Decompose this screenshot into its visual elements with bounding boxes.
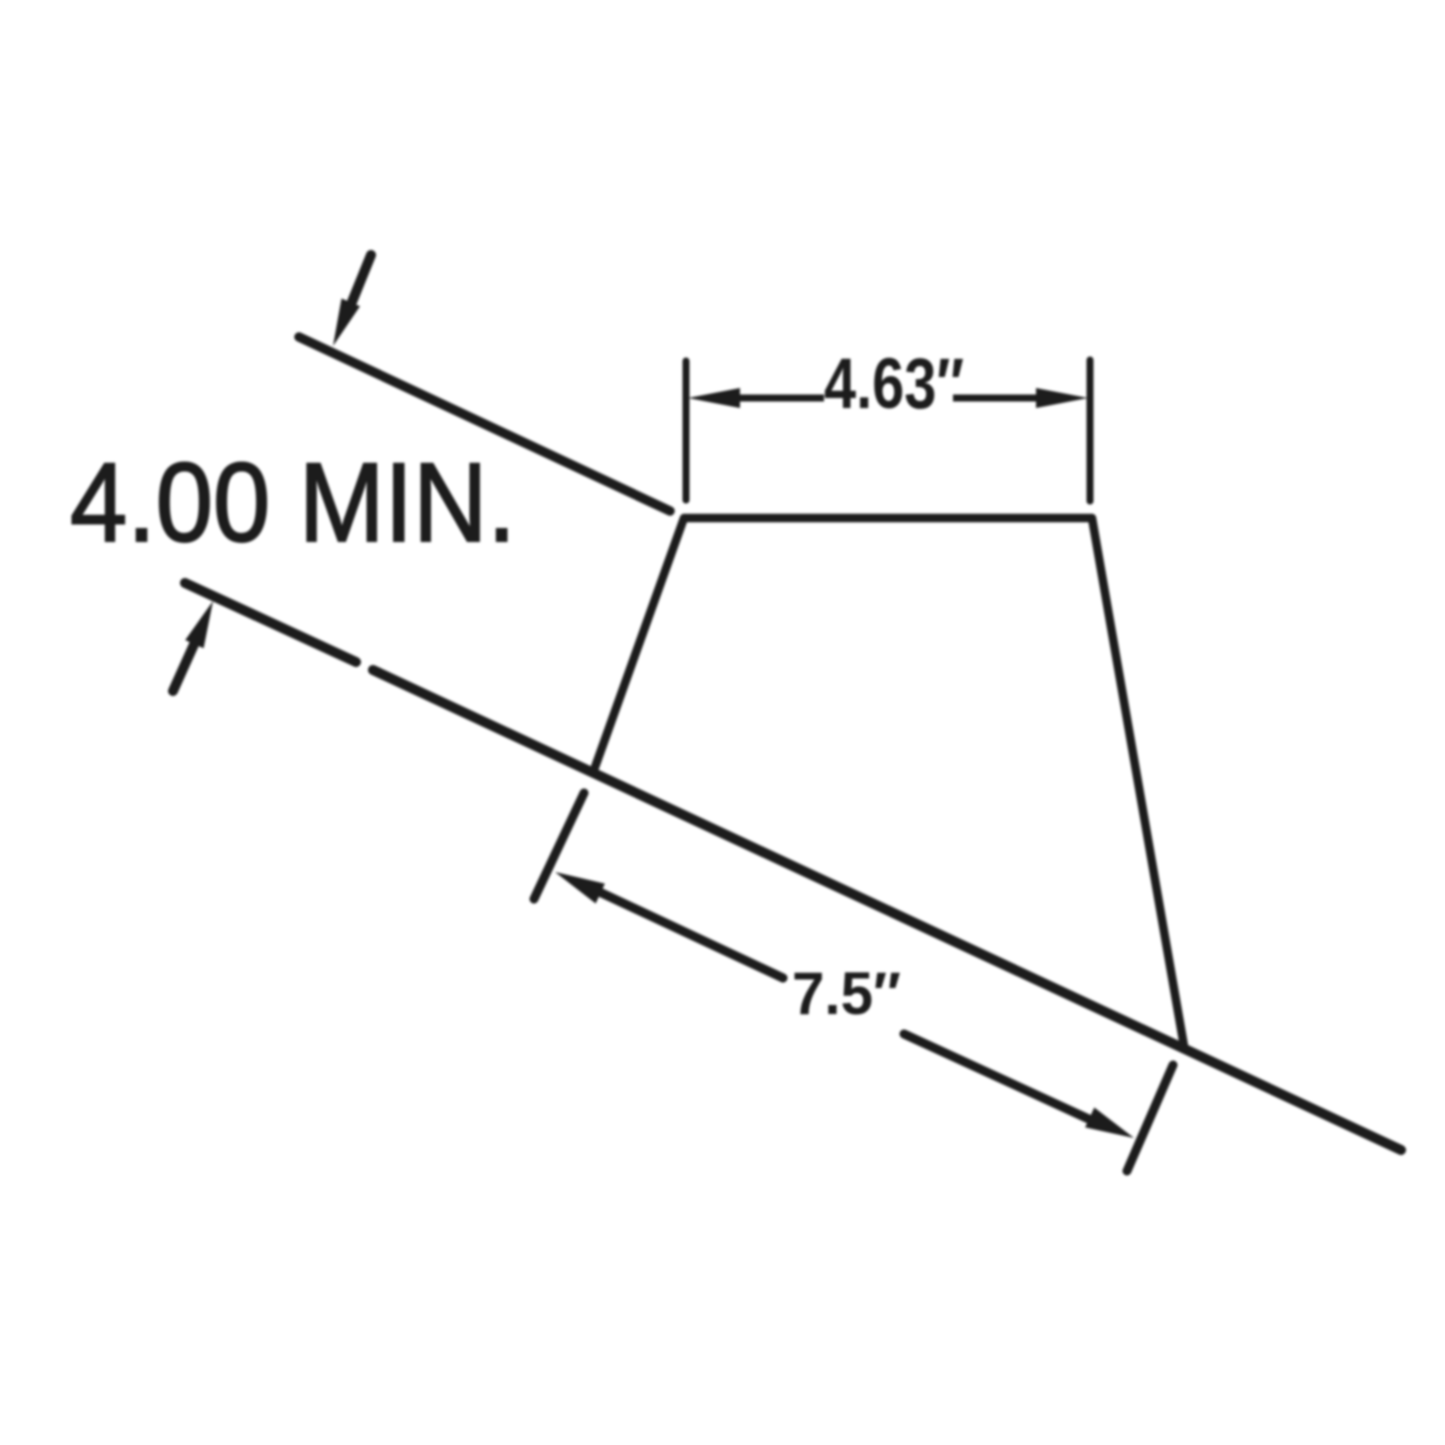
svg-text:7.5″: 7.5″ [792, 960, 901, 1027]
svg-text:4.63″: 4.63″ [824, 345, 964, 424]
svg-text:4.00 MIN.: 4.00 MIN. [70, 440, 516, 565]
